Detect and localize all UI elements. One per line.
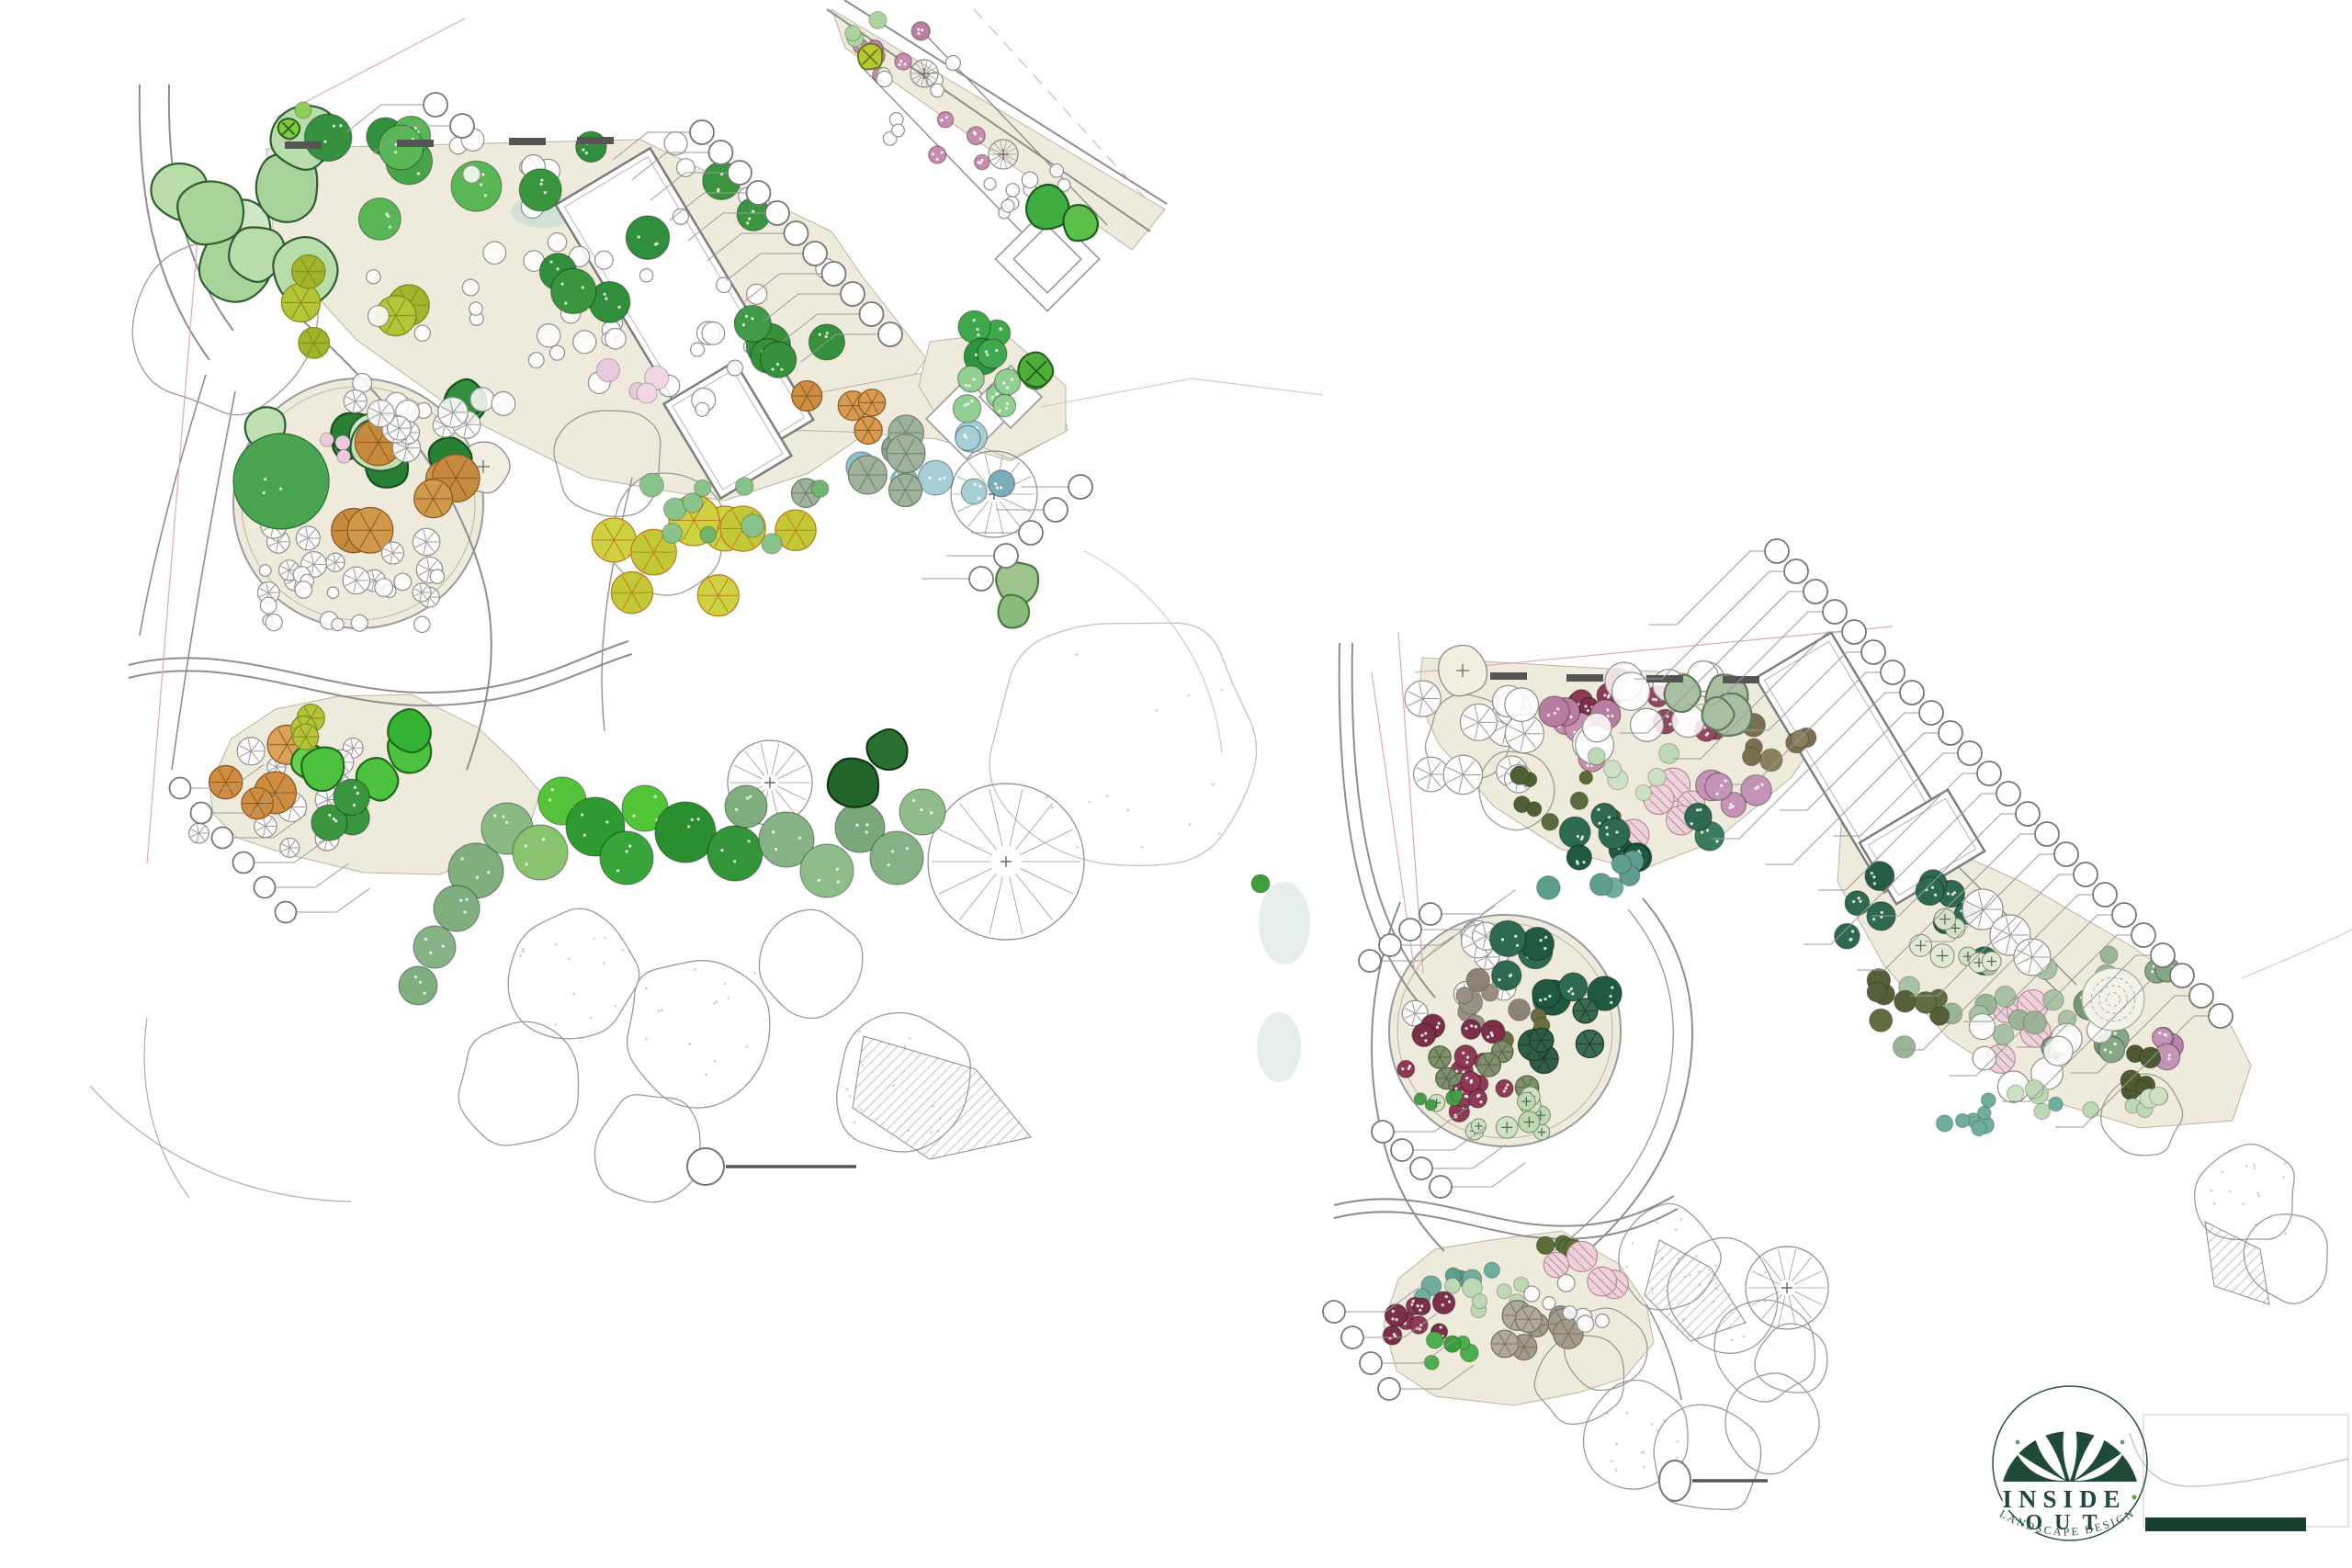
plant-callout-circle (1823, 600, 1847, 624)
plant-callout-circle (1900, 681, 1924, 705)
plant-callout-circle (1069, 475, 1092, 499)
planting-plan-left (90, 0, 1323, 1202)
plant-callout-circle (2112, 903, 2136, 927)
plant-callout-circle (1399, 919, 1421, 941)
plant-callout-circle (2016, 802, 2040, 826)
plant-callout-circle (424, 93, 447, 117)
plant-callout-circle (1359, 950, 1381, 972)
plant-callout-circle (1391, 1139, 1413, 1161)
plant-callout-circle (212, 828, 233, 849)
company-logo: INSIDE OUT LANDSCAPE DESIGN (1993, 1386, 2348, 1540)
plant-callout-circle (233, 852, 254, 874)
plant-callout-circle (170, 778, 191, 799)
plant-callout-circle (2093, 883, 2117, 907)
landscape-design-sheet: INSIDE OUT LANDSCAPE DESIGN (0, 0, 2352, 1568)
plant-callout-circle (878, 322, 902, 346)
plant-callout-circle (1044, 498, 1068, 522)
plant-callout-circle (450, 114, 474, 138)
plant-callout-circle (1372, 1121, 1394, 1143)
plant-callout-circle (1765, 539, 1789, 563)
plant-callout-circle (1419, 903, 1442, 925)
plant-callout-circle (822, 262, 846, 286)
plant-callout-circle (2054, 842, 2078, 866)
plant-callout-circle (728, 161, 752, 185)
plant-callout-circle (1430, 1176, 1452, 1198)
plant-callout-circle (1804, 580, 1827, 604)
plant-callout-circle (709, 141, 733, 164)
plant-callout-circle (2170, 964, 2194, 987)
scale-marker (687, 1148, 856, 1185)
plant-callout-circle (1378, 1378, 1400, 1400)
plant-callout-circle (1861, 640, 1885, 664)
plant-callout-circle (1919, 701, 1943, 725)
logo-card-border (2143, 1415, 2348, 1527)
plant-callout-circle (2131, 923, 2155, 947)
plant-callout-circle (1996, 782, 2020, 806)
plant-callout-circle (2074, 863, 2098, 886)
plant-callout-circle (1019, 521, 1043, 545)
plant-callout-circle (254, 877, 276, 898)
plant-callout-circle (2151, 943, 2175, 967)
plant-callout-circle (1323, 1301, 1345, 1323)
plant-callout-circle (1341, 1326, 1363, 1348)
site-plan-canvas: INSIDE OUT LANDSCAPE DESIGN (0, 0, 2352, 1568)
plant-callout-circle (1881, 660, 1905, 684)
plant-callout-circle (765, 201, 789, 225)
plant-cluster (592, 495, 816, 616)
logo-title-line1: INSIDE (2002, 1485, 2126, 1513)
plant-callout-circle (785, 221, 808, 245)
plant-callout-circle (690, 120, 714, 144)
logo-accent-bar (2145, 1517, 2306, 1531)
plant-callout-circle (1939, 721, 1962, 745)
plant-callout-circle (1379, 934, 1401, 956)
plant-callout-circle (2209, 1004, 2233, 1028)
plant-callout-circle (1784, 559, 1808, 583)
plant-callout-circle (1842, 620, 1866, 644)
scale-marker (1659, 1461, 1768, 1501)
plant-callout-circle (841, 282, 865, 306)
plant-callout-circle (1410, 1157, 1432, 1179)
logo-swoosh-line (2130, 1433, 2348, 1486)
plant-callout-circle (803, 242, 827, 265)
plant-callout-circle (276, 902, 297, 923)
plant-callout-circle (2035, 822, 2059, 846)
plant-callout-circle (994, 544, 1018, 568)
plant-callout-circle (1360, 1352, 1382, 1374)
plant-callout-circle (969, 567, 993, 591)
planting-plan-right (1251, 539, 2352, 1509)
plant-callout-circle (1977, 761, 2001, 785)
plant-callout-circle (2189, 984, 2213, 1008)
plant-callout-circle (191, 803, 212, 824)
plant-callout-circle (1958, 741, 1982, 765)
plant-callout-circle (747, 181, 771, 205)
plant-callout-circle (860, 302, 884, 326)
